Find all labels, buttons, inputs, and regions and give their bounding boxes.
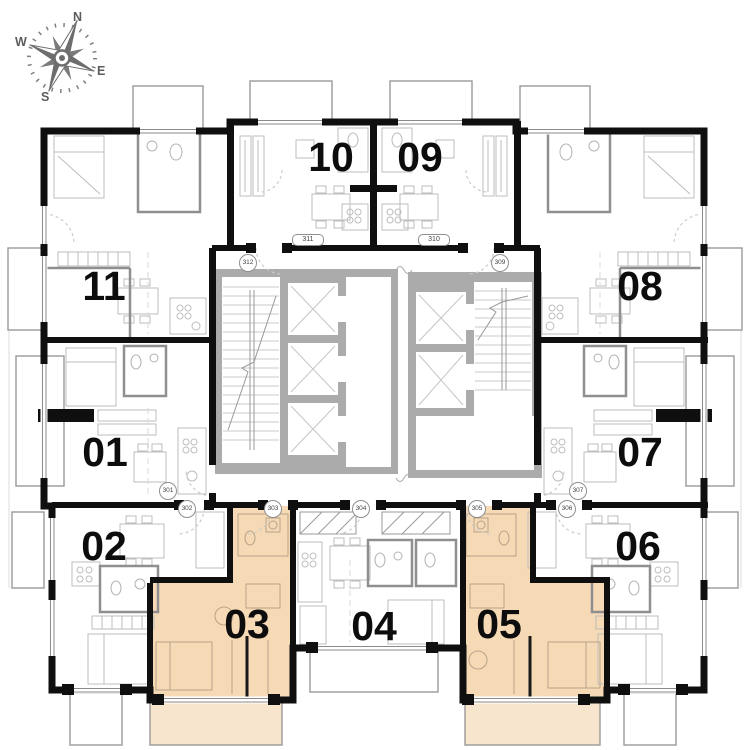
core-right xyxy=(408,272,542,478)
door-tag-311: 311 xyxy=(292,234,324,246)
core-left xyxy=(215,269,398,474)
staircase-right xyxy=(474,282,532,394)
unit-label-09[interactable]: 09 xyxy=(390,133,450,181)
balcony xyxy=(12,512,44,588)
unit-label-11[interactable]: 11 xyxy=(74,262,134,310)
balcony xyxy=(70,693,122,745)
balcony xyxy=(706,248,742,330)
balcony xyxy=(8,248,44,330)
compass-letter-s: S xyxy=(41,90,49,104)
balcony xyxy=(706,512,738,588)
floor-plan-page: N E S W 01 02 03 04 05 06 07 08 09 10 11… xyxy=(0,0,750,750)
unit-label-04[interactable]: 04 xyxy=(344,602,404,650)
unit-label-06[interactable]: 06 xyxy=(608,522,668,570)
unit-label-01[interactable]: 01 xyxy=(75,428,135,476)
door-tag-306: 306 xyxy=(558,500,576,518)
balcony xyxy=(310,650,438,692)
unit-label-05[interactable]: 05 xyxy=(469,600,529,648)
balcony xyxy=(520,86,590,131)
unit-label-03[interactable]: 03 xyxy=(217,600,277,648)
door-tag-312: 312 xyxy=(239,254,257,272)
door-tag-301: 301 xyxy=(159,482,177,500)
door-tag-304: 304 xyxy=(352,500,370,518)
compass-rose xyxy=(16,7,110,105)
door-tag-303: 303 xyxy=(264,500,282,518)
door-tag-310: 310 xyxy=(418,234,450,246)
door-tag-307: 307 xyxy=(569,482,587,500)
balcony xyxy=(390,81,472,123)
balcony xyxy=(250,81,332,123)
balcony xyxy=(133,86,203,131)
compass-letter-n: N xyxy=(73,10,82,24)
unit-label-08[interactable]: 08 xyxy=(610,262,670,310)
unit-label-02[interactable]: 02 xyxy=(74,522,134,570)
unit-label-10[interactable]: 10 xyxy=(301,133,361,181)
balcony xyxy=(624,693,676,745)
compass-letter-e: E xyxy=(97,64,105,78)
door-tag-309: 309 xyxy=(491,254,509,272)
compass-letter-w: W xyxy=(15,35,27,49)
unit-label-07[interactable]: 07 xyxy=(610,428,670,476)
door-tag-305: 305 xyxy=(468,500,486,518)
balcony-unit03 xyxy=(150,697,282,745)
door-tag-302: 302 xyxy=(178,500,196,518)
